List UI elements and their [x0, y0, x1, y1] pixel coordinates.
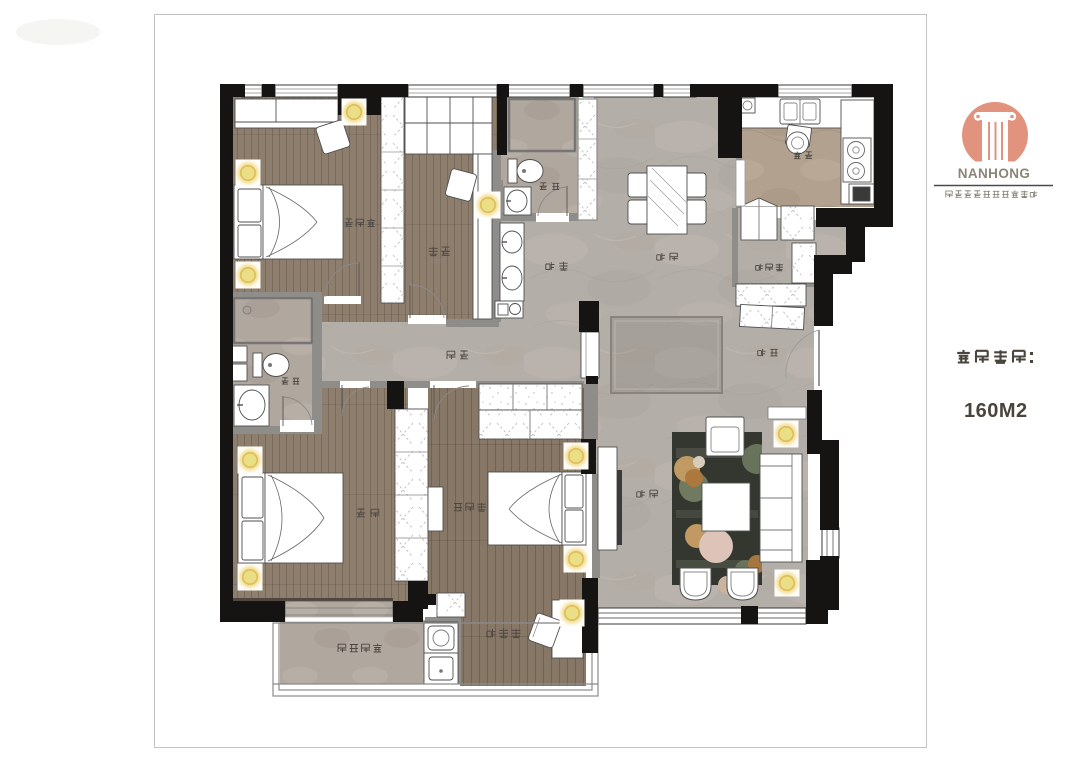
svg-text:160M2: 160M2	[964, 400, 1028, 422]
svg-text:NANHONG: NANHONG	[958, 166, 1031, 181]
